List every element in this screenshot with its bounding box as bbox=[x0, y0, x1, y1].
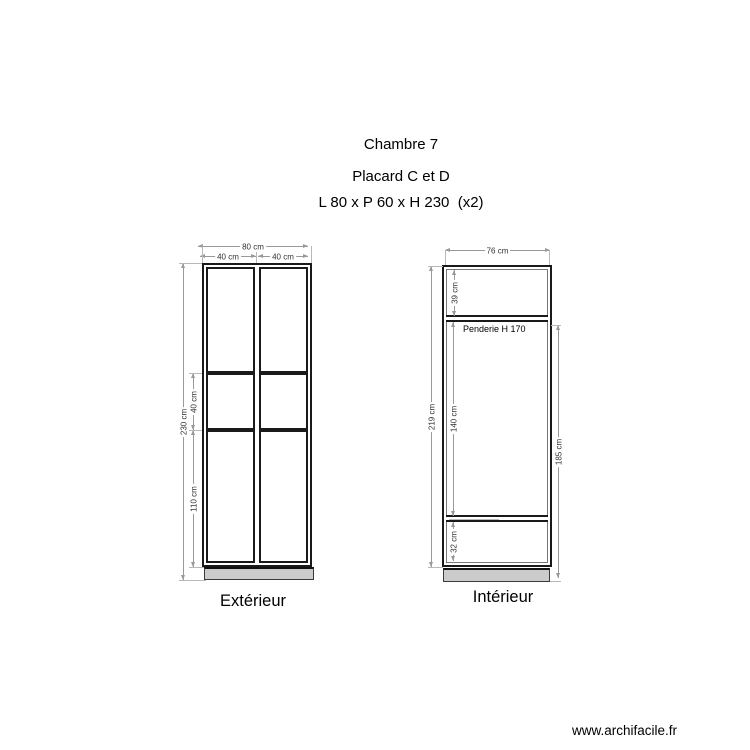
exterior-view-label: Extérieur bbox=[188, 592, 318, 611]
extension-line bbox=[549, 250, 550, 265]
hanging-rod-annotation: Penderie H 170 bbox=[463, 324, 526, 334]
dim-exterior-total-width: 80 cm bbox=[198, 246, 308, 247]
dim-interior-right-height: 185 cm bbox=[558, 325, 559, 578]
dim-exterior-bottom-section-label: 110 cm bbox=[190, 484, 199, 514]
dim-exterior-total-width-label: 80 cm bbox=[240, 243, 266, 252]
extension-line bbox=[256, 252, 257, 263]
interior-plinth bbox=[443, 568, 550, 582]
dim-interior-hanging-section-label: 140 cm bbox=[450, 404, 459, 434]
page-title-closet: Placard C et D bbox=[176, 168, 626, 185]
extension-line bbox=[550, 581, 561, 582]
dim-exterior-middle-section: 40 cm bbox=[193, 373, 194, 430]
extension-line bbox=[428, 266, 443, 267]
dim-exterior-door-right-label: 40 cm bbox=[270, 253, 296, 262]
door-panel-middle bbox=[259, 373, 308, 430]
exterior-plinth bbox=[204, 567, 314, 580]
extension-line bbox=[179, 263, 202, 264]
page-title-dimensions: L 80 x P 60 x H 230 (x2) bbox=[176, 194, 626, 211]
door-panel-bottom bbox=[206, 430, 255, 563]
dim-interior-inner-height-label: 219 cm bbox=[428, 401, 437, 431]
exterior-door-right bbox=[259, 267, 308, 563]
dim-interior-right-height-label: 185 cm bbox=[555, 436, 564, 466]
dim-exterior-door-left: 40 cm bbox=[200, 256, 256, 257]
extension-line bbox=[445, 250, 446, 265]
interior-top-shelf bbox=[446, 315, 548, 322]
door-panel-middle bbox=[206, 373, 255, 430]
dim-interior-width-label: 76 cm bbox=[485, 247, 511, 256]
archifacile-watermark: www.archifacile.fr bbox=[572, 723, 677, 738]
dim-exterior-total-height: 230 cm bbox=[183, 263, 184, 580]
extension-line bbox=[311, 246, 312, 263]
plan-page: Chambre 7 Placard C et D L 80 x P 60 x H… bbox=[0, 0, 750, 750]
dim-interior-bottom-section: 32 cm bbox=[453, 522, 454, 561]
extension-line bbox=[551, 325, 561, 326]
dim-exterior-total-height-label: 230 cm bbox=[180, 406, 189, 436]
dim-exterior-bottom-section: 110 cm bbox=[193, 430, 194, 567]
dim-interior-top-section-label: 39 cm bbox=[451, 280, 460, 306]
dim-exterior-middle-section-label: 40 cm bbox=[190, 389, 199, 415]
dim-interior-bottom-section-label: 32 cm bbox=[450, 529, 459, 555]
dim-interior-inner-height: 219 cm bbox=[431, 266, 432, 567]
extension-line bbox=[428, 567, 443, 568]
door-panel-top bbox=[259, 267, 308, 373]
interior-view-label: Intérieur bbox=[438, 588, 568, 607]
dim-interior-hanging-section: 140 cm bbox=[453, 322, 454, 516]
dim-exterior-door-left-label: 40 cm bbox=[215, 253, 241, 262]
extension-line bbox=[179, 580, 206, 581]
page-title-room: Chambre 7 bbox=[176, 136, 626, 153]
door-panel-bottom bbox=[259, 430, 308, 563]
exterior-door-left bbox=[206, 267, 255, 563]
dim-exterior-door-right: 40 cm bbox=[258, 256, 308, 257]
dim-interior-width: 76 cm bbox=[445, 250, 550, 251]
dim-interior-top-section: 39 cm bbox=[454, 270, 455, 316]
extension-line bbox=[449, 519, 499, 520]
extension-line bbox=[202, 246, 203, 263]
door-panel-top bbox=[206, 267, 255, 373]
